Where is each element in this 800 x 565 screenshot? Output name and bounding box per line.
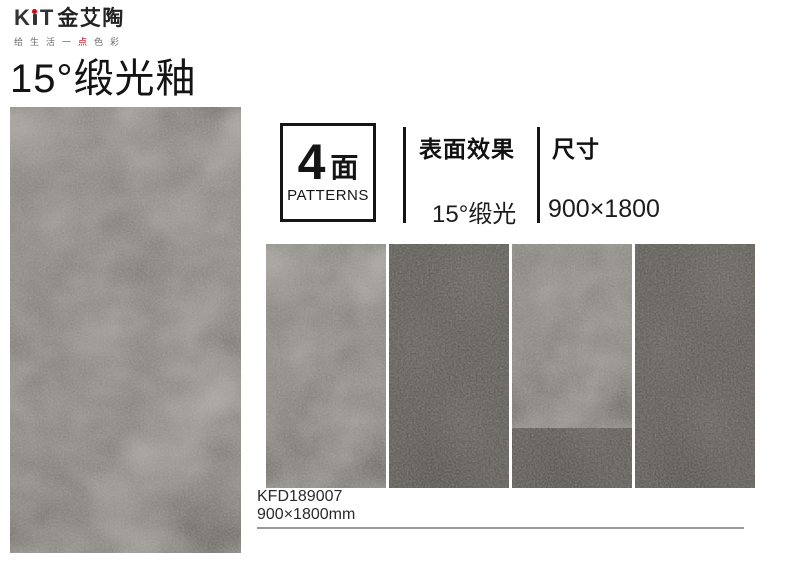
page-title: 15°缎光釉 — [10, 46, 197, 104]
tile-texture — [10, 107, 241, 553]
brand-logo-row: K T 金艾陶 — [14, 7, 126, 31]
tile-texture — [512, 244, 632, 488]
patterns-label: PATTERNS — [287, 187, 369, 204]
vertical-divider — [403, 127, 406, 223]
logo-letter-k: K — [14, 7, 31, 29]
pattern-strip — [266, 244, 755, 488]
product-code: KFD189007 — [257, 488, 355, 506]
logo-letter-i — [32, 9, 39, 25]
vertical-divider — [537, 127, 540, 223]
logo-i-stem — [33, 14, 37, 25]
tile-texture — [635, 244, 755, 488]
pattern-tile-3 — [512, 244, 632, 488]
logo-letter-t: T — [40, 7, 54, 29]
size-label: 尺寸 — [552, 130, 600, 164]
logo-cn-text: 金艾陶 — [57, 8, 125, 29]
caption-underline — [257, 527, 744, 529]
pattern-tile-4 — [635, 244, 755, 488]
surface-effect-value: 15°缎光 — [432, 194, 516, 229]
patterns-box: 4 面 PATTERNS — [280, 123, 376, 222]
pattern-tile-1 — [266, 244, 386, 488]
size-value: 900×1800 — [548, 195, 660, 224]
pattern-tile-2 — [389, 244, 509, 488]
tile-texture — [266, 244, 386, 488]
main-tile-image — [10, 107, 241, 553]
patterns-count: 4 — [298, 141, 326, 184]
product-caption: KFD189007 900×1800mm — [257, 488, 355, 524]
surface-effect-label: 表面效果 — [419, 130, 515, 164]
tile-texture — [389, 244, 509, 488]
catalog-page: K T 金艾陶 给生活一点色彩 15°缎光釉 4 面 PATTERNS 表面效果 — [0, 0, 800, 565]
patterns-unit: 面 — [330, 154, 358, 182]
product-size: 900×1800mm — [257, 506, 355, 524]
patterns-box-top: 4 面 — [298, 141, 359, 184]
brand-logo: K T 金艾陶 给生活一点色彩 — [14, 7, 126, 48]
